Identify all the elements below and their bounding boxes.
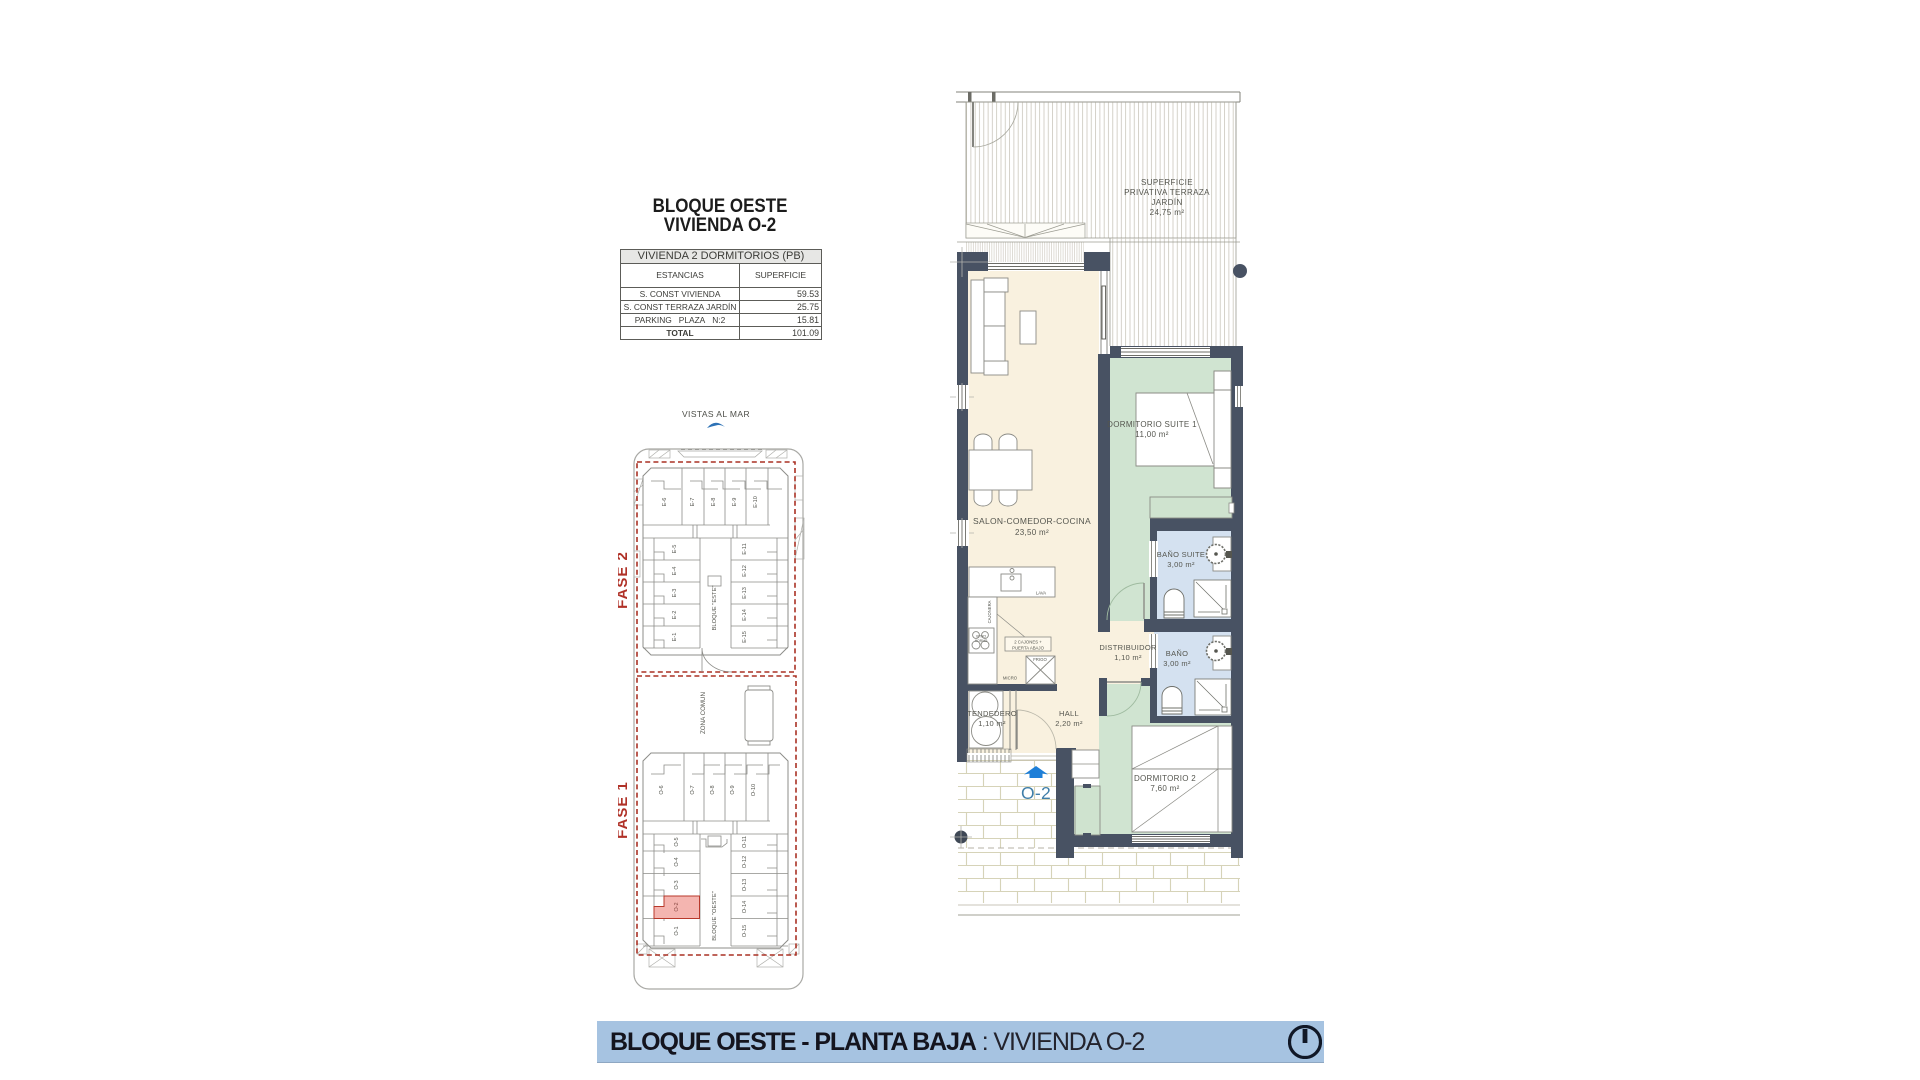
svg-text:FASE 2: FASE 2 [618, 551, 631, 609]
svg-text:BLOQUE "ESTE": BLOQUE "ESTE" [712, 585, 718, 630]
svg-text:2,20 m²: 2,20 m² [1055, 719, 1083, 728]
svg-text:O-4: O-4 [674, 857, 680, 866]
svg-text:BLOQUE "OESTE": BLOQUE "OESTE" [712, 891, 718, 941]
svg-text:7,60 m²: 7,60 m² [1150, 784, 1179, 793]
svg-text:PUERTA ABAJO: PUERTA ABAJO [1012, 646, 1044, 651]
svg-text:E-15: E-15 [742, 631, 748, 643]
svg-text:DISTRIBUIDOR: DISTRIBUIDOR [1099, 643, 1157, 652]
svg-text:TENDEDERO: TENDEDERO [967, 709, 1017, 718]
svg-text:E-2: E-2 [672, 611, 678, 620]
svg-text:FASE 1: FASE 1 [618, 781, 631, 839]
svg-text:O-2: O-2 [1021, 783, 1051, 803]
svg-text:O-11: O-11 [742, 836, 748, 848]
svg-text:E-8: E-8 [711, 498, 717, 507]
svg-text:O-8: O-8 [710, 785, 716, 794]
svg-text:VITRO: VITRO [976, 635, 987, 639]
svg-text:O-2: O-2 [674, 902, 680, 911]
svg-text:E-1: E-1 [672, 633, 678, 642]
svg-text:E-5: E-5 [672, 545, 678, 554]
svg-text:O-12: O-12 [742, 856, 748, 868]
svg-text:2 CAJONES +: 2 CAJONES + [1014, 640, 1042, 645]
svg-text:BAÑO: BAÑO [1166, 649, 1188, 658]
svg-text:23,50 m²: 23,50 m² [1015, 528, 1049, 537]
svg-text:E-4: E-4 [672, 567, 678, 576]
svg-text:E-10: E-10 [753, 496, 759, 508]
svg-text:ZONA COMUN: ZONA COMUN [700, 692, 707, 734]
svg-text:E-3: E-3 [672, 589, 678, 598]
svg-text:1,10 m²: 1,10 m² [978, 719, 1006, 728]
svg-text:O-13: O-13 [742, 879, 748, 891]
svg-text:FRIGO: FRIGO [1033, 657, 1047, 662]
svg-text:O-6: O-6 [659, 785, 665, 794]
svg-text:E-6: E-6 [662, 498, 668, 507]
svg-text:O-7: O-7 [690, 785, 696, 794]
svg-text:E-11: E-11 [742, 543, 748, 554]
svg-text:MICRO: MICRO [1003, 676, 1018, 681]
svg-text:HORNO: HORNO [975, 639, 988, 643]
svg-text:DORMITORIO SUITE 1: DORMITORIO SUITE 1 [1107, 420, 1197, 429]
svg-text:3,00 m²: 3,00 m² [1167, 560, 1195, 569]
svg-text:DORMITORIO 2: DORMITORIO 2 [1134, 774, 1196, 783]
svg-text:E-7: E-7 [690, 498, 696, 507]
svg-text:3,00 m²: 3,00 m² [1163, 659, 1191, 668]
svg-text:CAJONERA: CAJONERA [987, 600, 992, 623]
svg-text:O-15: O-15 [742, 925, 748, 937]
svg-text:O-3: O-3 [674, 880, 680, 889]
svg-text:O-10: O-10 [751, 784, 757, 796]
svg-text:1,10 m²: 1,10 m² [1114, 653, 1142, 662]
svg-text:11,00 m²: 11,00 m² [1135, 430, 1168, 439]
svg-text:JARDÍN: JARDÍN [1151, 198, 1182, 207]
svg-text:E-9: E-9 [732, 498, 738, 507]
svg-text:O-5: O-5 [674, 837, 680, 846]
svg-text:O-9: O-9 [730, 785, 736, 794]
svg-text:E-12: E-12 [742, 565, 748, 577]
svg-text:24,75 m²: 24,75 m² [1150, 208, 1185, 217]
svg-text:E-13: E-13 [742, 587, 748, 599]
svg-text:O-14: O-14 [742, 901, 748, 913]
svg-text:E-14: E-14 [742, 609, 748, 621]
svg-text:O-1: O-1 [674, 926, 680, 935]
svg-text:SALON-COMEDOR-COCINA: SALON-COMEDOR-COCINA [973, 516, 1091, 526]
svg-text:PRIVATIVA TERRAZA: PRIVATIVA TERRAZA [1124, 188, 1210, 197]
svg-text:BAÑO SUITE: BAÑO SUITE [1157, 550, 1205, 559]
svg-text:LAVA: LAVA [1036, 591, 1046, 596]
svg-text:SUPERFICIE: SUPERFICIE [1141, 178, 1193, 187]
svg-text:HALL: HALL [1059, 709, 1079, 718]
